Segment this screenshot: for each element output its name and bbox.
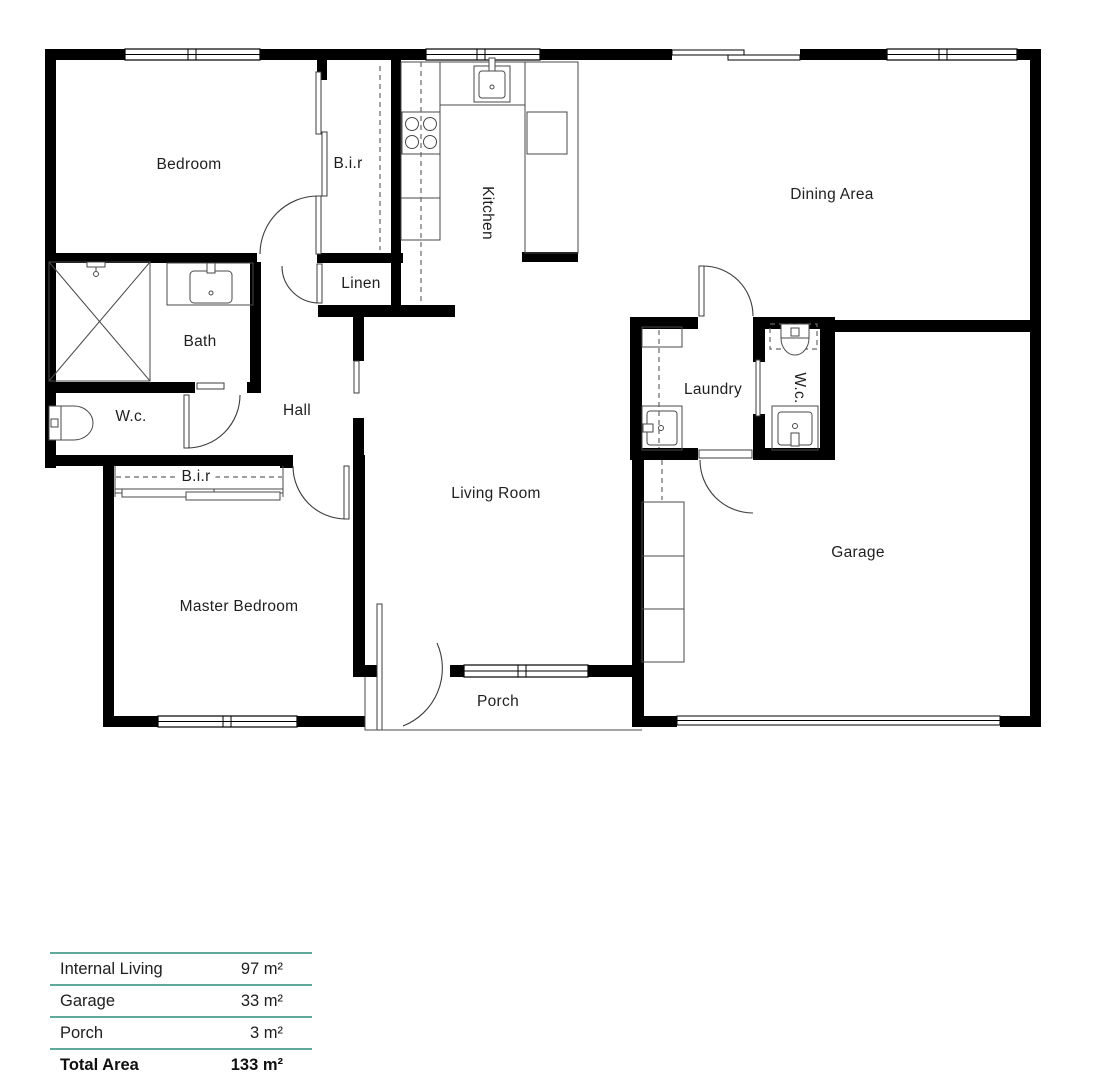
toilet-icon <box>781 324 809 355</box>
bathroom-fixtures <box>49 262 253 440</box>
room-label-wc-1: W.c. <box>115 408 146 426</box>
area-table: Internal Living 97 m² Garage 33 m² Porch… <box>50 952 312 1080</box>
linen-door <box>282 264 322 303</box>
area-row-total: Total Area 133 m² <box>50 1048 312 1080</box>
area-row-value: 133 m² <box>231 1056 312 1075</box>
laundry-fixtures <box>642 327 682 500</box>
room-label-bedroom: Bedroom <box>157 156 222 174</box>
toilet-icon <box>49 406 93 440</box>
room-label-living-room: Living Room <box>451 485 540 503</box>
vanity-sink-icon <box>167 263 253 305</box>
fridge-icon <box>527 112 567 154</box>
area-row-porch: Porch 3 m² <box>50 1016 312 1048</box>
area-row-value: 3 m² <box>250 1024 312 1043</box>
cupboard-icon <box>642 327 682 347</box>
garage-internal-door <box>699 450 753 513</box>
washer-icon <box>642 406 682 450</box>
kitchen-fixtures <box>380 58 578 302</box>
wc-sink-icon <box>772 406 818 450</box>
master-bedroom-door <box>293 466 349 519</box>
room-label-garage: Garage <box>831 544 885 562</box>
entry-door <box>377 604 442 730</box>
room-label-hall: Hall <box>283 402 311 420</box>
area-row-internal-living: Internal Living 97 m² <box>50 952 312 984</box>
garage-fixtures <box>642 502 684 662</box>
floor-plan: Bedroom B.i.r Kitchen Dining Area Linen … <box>0 0 1103 1080</box>
room-label-dining-area: Dining Area <box>790 186 873 204</box>
room-label-kitchen: Kitchen <box>478 186 496 240</box>
area-row-label: Garage <box>50 992 115 1011</box>
room-label-wc-2: W.c. <box>790 372 808 403</box>
area-row-label: Porch <box>50 1024 103 1043</box>
area-row-label: Total Area <box>50 1056 139 1075</box>
room-label-master-bedroom: Master Bedroom <box>180 598 299 616</box>
storage-icon <box>642 556 684 609</box>
area-row-label: Internal Living <box>50 960 163 979</box>
kitchen-sink-icon <box>474 58 510 102</box>
storage-icon <box>642 502 684 556</box>
area-row-garage: Garage 33 m² <box>50 984 312 1016</box>
storage-icon <box>642 609 684 662</box>
area-row-value: 33 m² <box>241 992 312 1011</box>
room-label-bir-top: B.i.r <box>328 155 367 173</box>
walls <box>45 49 1041 727</box>
bedroom-door <box>260 196 321 254</box>
wc2-sliding-door <box>756 360 760 416</box>
doors <box>184 72 760 730</box>
room-label-linen: Linen <box>341 275 380 293</box>
bath-sliding-door <box>197 383 224 389</box>
room-label-bir-bottom: B.i.r <box>176 468 215 486</box>
hall-door-leaf <box>354 361 359 393</box>
laundry-door <box>699 266 753 316</box>
room-label-laundry: Laundry <box>684 381 742 399</box>
shower-icon <box>49 262 150 381</box>
room-label-bath: Bath <box>183 333 216 351</box>
bir-sliding-panels <box>316 72 327 196</box>
room-label-porch: Porch <box>477 693 519 711</box>
area-row-value: 97 m² <box>241 960 312 979</box>
wc-door <box>184 395 240 448</box>
